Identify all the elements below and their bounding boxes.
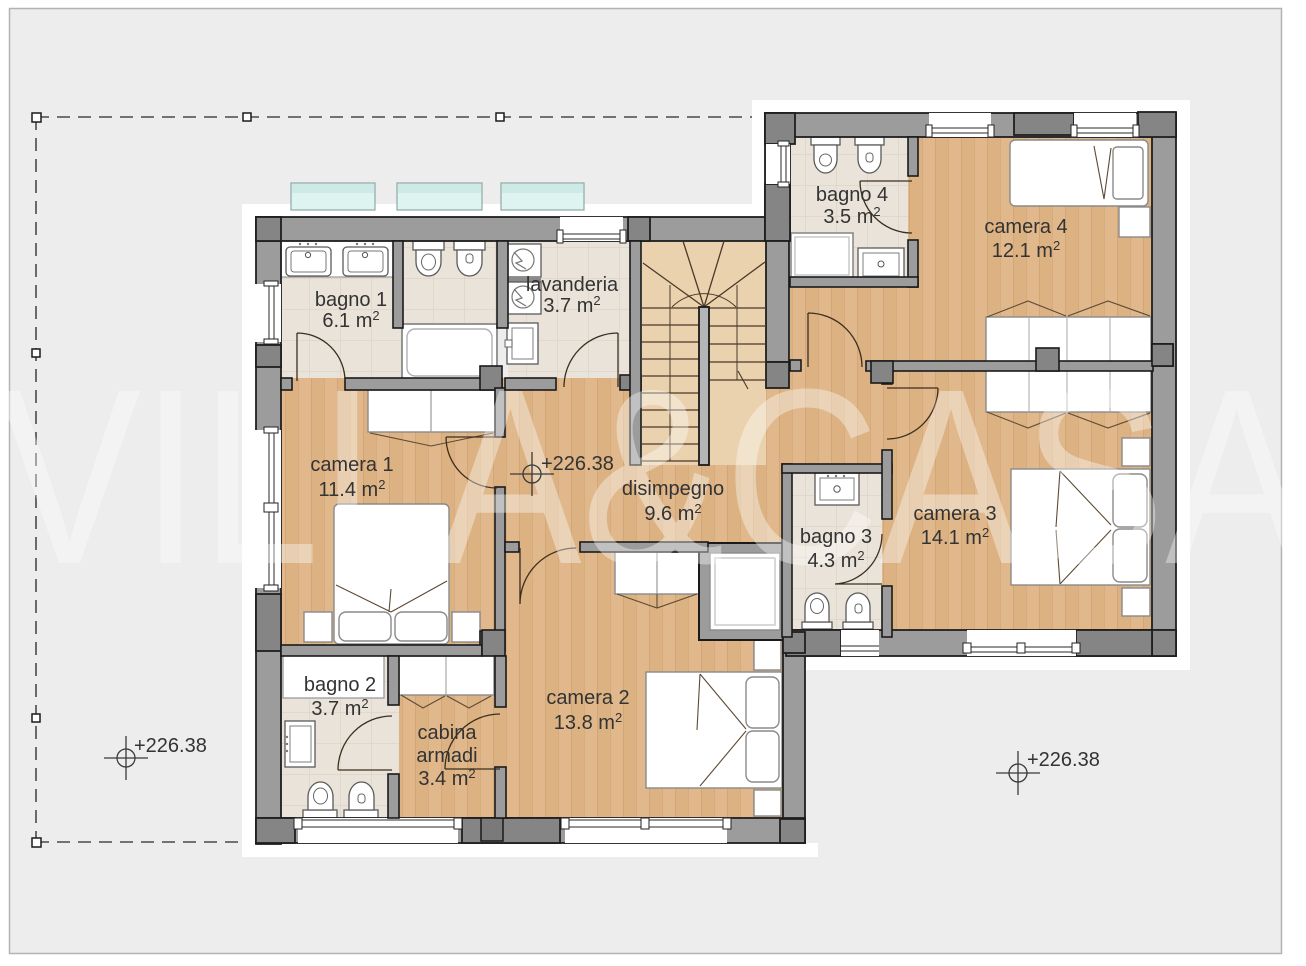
svg-text:+226.38: +226.38	[541, 453, 614, 475]
svg-text:9.6 m2: 9.6 m2	[644, 501, 701, 525]
svg-text:VILLA&CASA: VILLA&CASA	[0, 337, 1306, 616]
svg-text:camera 2: camera 2	[546, 687, 629, 709]
svg-text:camera 4: camera 4	[984, 216, 1067, 238]
svg-text:3.4 m2: 3.4 m2	[418, 766, 475, 790]
svg-text:12.1 m2: 12.1 m2	[992, 238, 1060, 262]
svg-text:lavanderia: lavanderia	[526, 274, 619, 296]
svg-text:cabina: cabina	[418, 722, 478, 744]
svg-text:bagno 4: bagno 4	[816, 184, 888, 206]
svg-text:14.1 m2: 14.1 m2	[921, 525, 989, 549]
svg-text:4.3 m2: 4.3 m2	[807, 548, 864, 572]
svg-text:3.5 m2: 3.5 m2	[823, 204, 880, 228]
svg-text:6.1 m2: 6.1 m2	[322, 308, 379, 332]
svg-text:bagno 3: bagno 3	[800, 526, 872, 548]
svg-text:3.7 m2: 3.7 m2	[543, 293, 600, 317]
svg-text:11.4 m2: 11.4 m2	[319, 477, 386, 501]
svg-text:13.8 m2: 13.8 m2	[554, 710, 622, 734]
svg-text:bagno 2: bagno 2	[304, 674, 376, 696]
svg-text:disimpegno: disimpegno	[622, 478, 724, 500]
svg-text:+226.38: +226.38	[1027, 749, 1100, 771]
svg-text:+226.38: +226.38	[134, 735, 207, 757]
svg-text:camera 3: camera 3	[913, 503, 996, 525]
svg-text:armadi: armadi	[416, 745, 477, 767]
svg-text:3.7 m2: 3.7 m2	[311, 696, 368, 720]
svg-text:camera 1: camera 1	[310, 454, 393, 476]
